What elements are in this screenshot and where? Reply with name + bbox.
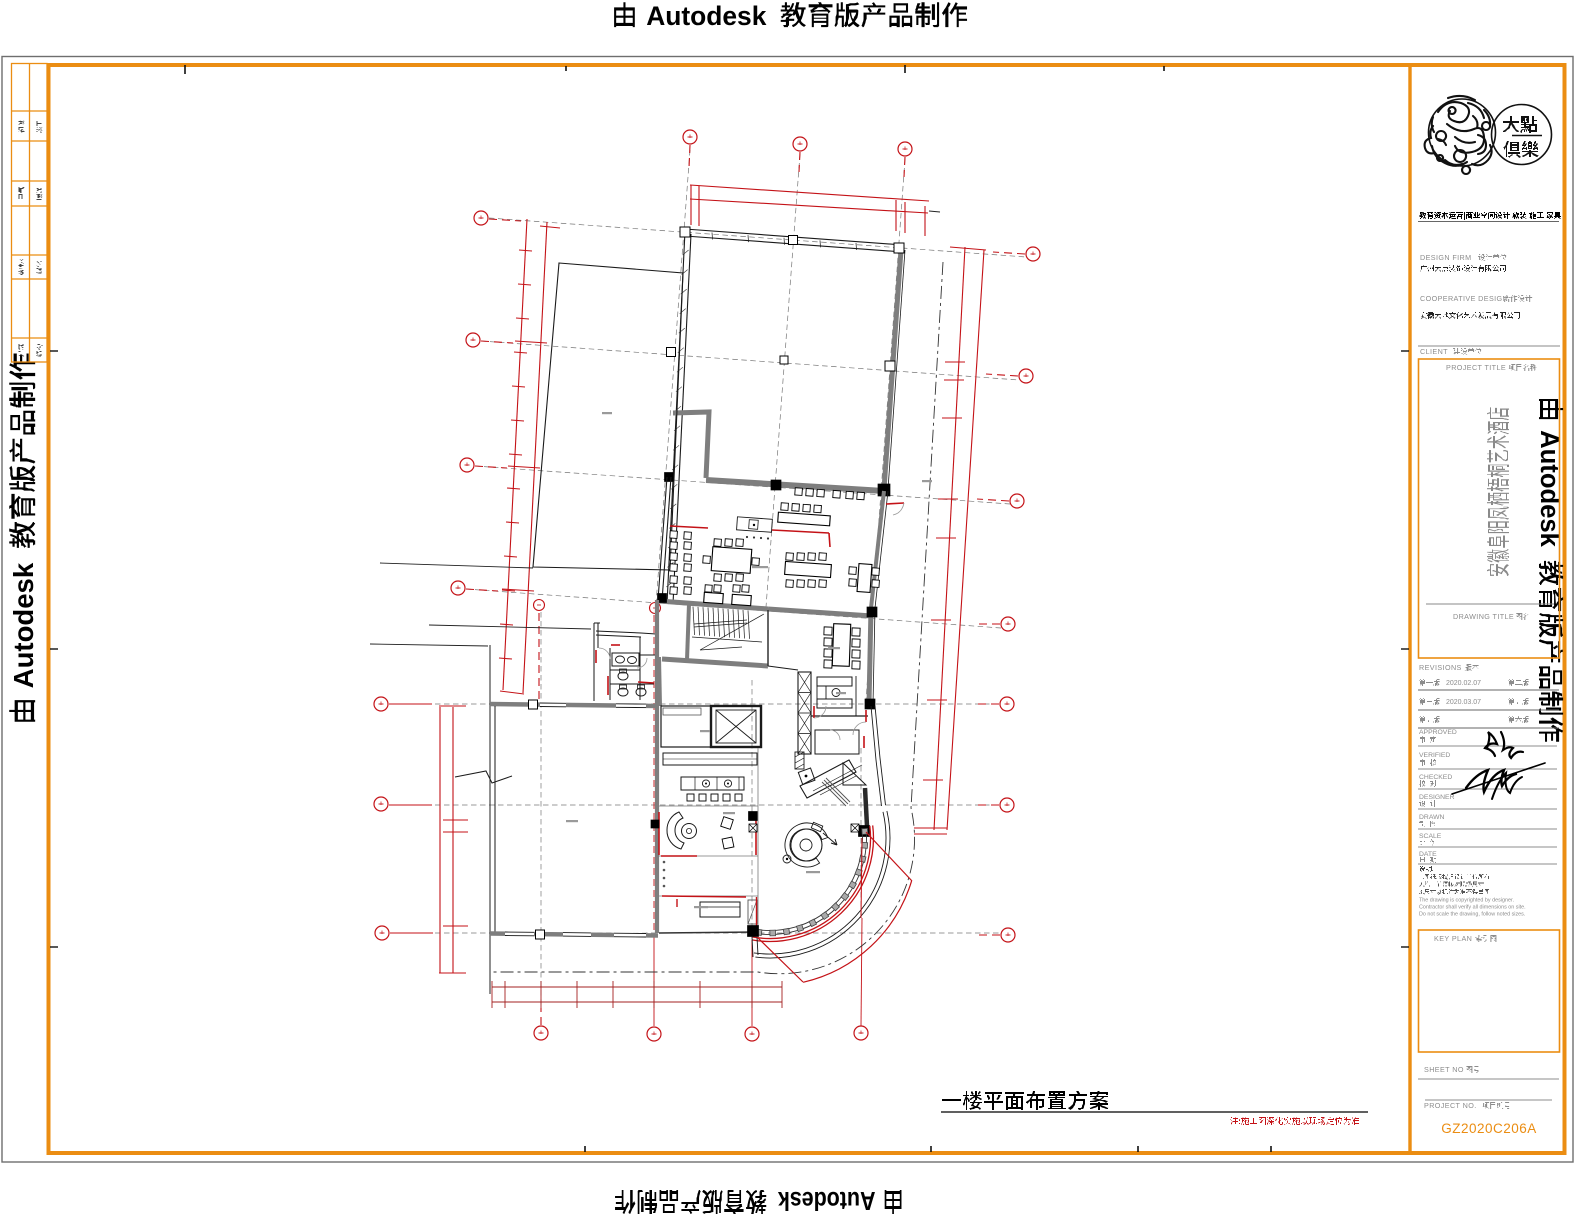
svg-text:APPROVED: APPROVED — [1419, 729, 1457, 736]
svg-text:VERIFIED: VERIFIED — [1419, 752, 1450, 759]
svg-text:The drawing is copyrighted by: The drawing is copyrighted by designer. — [1419, 898, 1514, 904]
svg-text:GZ2020C206A: GZ2020C206A — [1441, 1121, 1537, 1136]
svg-text:DATE: DATE — [1419, 851, 1437, 858]
svg-text:SCALE: SCALE — [1419, 833, 1442, 840]
svg-text:DRAWING TITLE: DRAWING TITLE — [1453, 612, 1514, 621]
svg-text:REVISIONS: REVISIONS — [1419, 663, 1462, 672]
svg-text:CLIENT: CLIENT — [1420, 347, 1448, 356]
svg-text:COOPERATIVE DESIGN: COOPERATIVE DESIGN — [1420, 294, 1508, 303]
svg-text:SHEET NO: SHEET NO — [1424, 1065, 1464, 1074]
svg-text:DESIGNER: DESIGNER — [1419, 794, 1455, 801]
svg-text:KEY PLAN: KEY PLAN — [1434, 934, 1472, 943]
svg-text:Do not scale the drawing, foll: Do not scale the drawing, follow noted s… — [1419, 912, 1525, 918]
svg-text:PROJECT NO.: PROJECT NO. — [1424, 1101, 1477, 1110]
svg-text:DESIGN FIRM: DESIGN FIRM — [1420, 253, 1472, 262]
svg-text:PROJECT TITLE: PROJECT TITLE — [1446, 363, 1506, 372]
svg-text:DRAWN: DRAWN — [1419, 814, 1445, 821]
svg-text:2020.03.07: 2020.03.07 — [1446, 699, 1481, 706]
svg-text:CHECKED: CHECKED — [1419, 774, 1452, 781]
svg-text:Contractor shall verify all di: Contractor shall verify all dimensions o… — [1419, 905, 1526, 911]
svg-text:2020.02.07: 2020.02.07 — [1446, 680, 1481, 687]
